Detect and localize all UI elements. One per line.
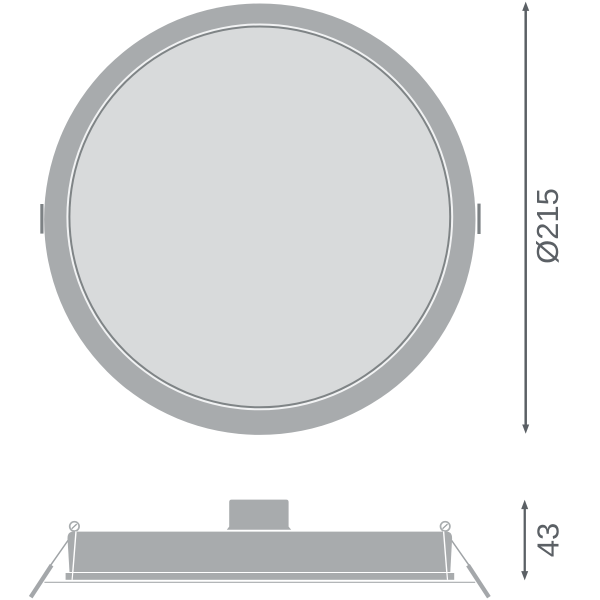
svg-text:43: 43	[531, 523, 566, 557]
svg-text:Ø215: Ø215	[530, 188, 565, 264]
